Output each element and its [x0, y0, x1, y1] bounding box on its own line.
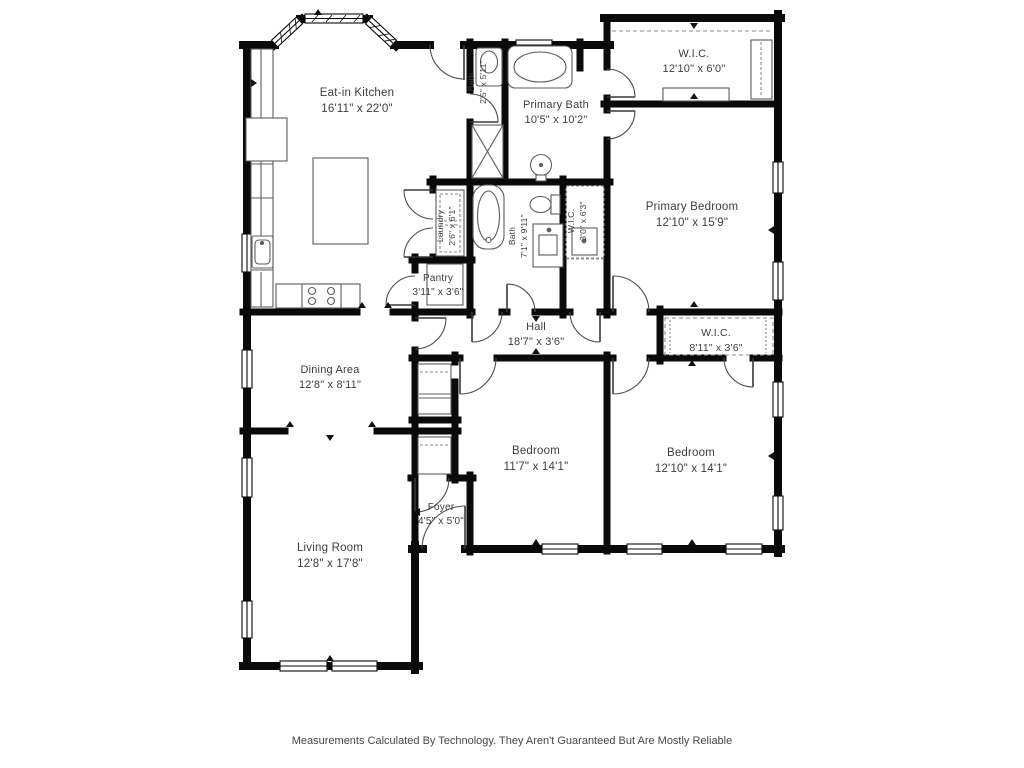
bath-tub [473, 185, 504, 249]
primary-bath-toilet [531, 155, 552, 182]
bath-vanity [533, 224, 563, 267]
primary-bath-tub [508, 46, 572, 88]
window-east-primary-2 [773, 262, 783, 300]
kitchen-island [313, 158, 368, 244]
window-east-primary-1 [773, 162, 783, 193]
refrigerator [246, 118, 287, 161]
room-label-eat-in-kitchen: Eat-in Kitchen16'11" x 22'0" [320, 87, 394, 115]
shower-stall [472, 125, 503, 178]
disclaimer-text: Measurements Calculated By Technology. T… [0, 735, 1024, 747]
window-bay-right [365, 17, 396, 47]
room-label-wic-bedroom: W.I.C.8'11" x 3'6" [689, 327, 742, 354]
range [276, 284, 360, 308]
window-bay-top [305, 14, 363, 23]
floorplan-page: Eat-in Kitchen16'11" x 22'0"W.I.C.12'10"… [0, 0, 1024, 768]
window-left-living-1 [242, 458, 252, 497]
room-label-bath: Bath7'1" x 9'11" [507, 214, 529, 258]
room-label-primary-bedroom: Primary Bedroom12'10" x 15'9" [646, 201, 738, 229]
kitchen-sink [252, 236, 273, 268]
window-east-bedroom2-1 [773, 382, 783, 417]
laundry-bifold-leaves [404, 190, 433, 257]
room-label-dining-area: Dining Area12'8" x 8'11" [299, 364, 361, 391]
window-bottom-living-1 [280, 661, 327, 671]
window-left-living-2 [242, 601, 252, 638]
bath-toilet [530, 195, 560, 214]
room-label-wic-primary: W.I.C.12'10" x 6'0" [663, 48, 726, 75]
room-label-foyer: Foyer4'5" x 5'0" [418, 502, 464, 527]
pantry-shelf [427, 264, 463, 305]
window-front-bedroom2-1 [627, 544, 662, 554]
room-label-primary-bath: Primary Bath10'5" x 10'2" [523, 99, 589, 126]
window-bay-left [271, 17, 302, 47]
room-label-bedroom-1: Bedroom11'7" x 14'1" [504, 445, 569, 473]
window-front-bedroom1 [542, 544, 578, 554]
window-left-dining [242, 350, 252, 388]
room-label-bedroom-2: Bedroom12'10" x 14'1" [655, 447, 727, 475]
floorplan-drawing: Eat-in Kitchen16'11" x 22'0"W.I.C.12'10"… [0, 0, 1024, 768]
window-front-bedroom2-2 [726, 544, 762, 554]
room-label-hall: Hall18'7" x 3'6" [508, 321, 565, 348]
window-bottom-living-2 [332, 661, 377, 671]
room-label-living-room: Living Room12'8" x 17'8" [297, 542, 363, 570]
window-east-bedroom2-2 [773, 496, 783, 530]
